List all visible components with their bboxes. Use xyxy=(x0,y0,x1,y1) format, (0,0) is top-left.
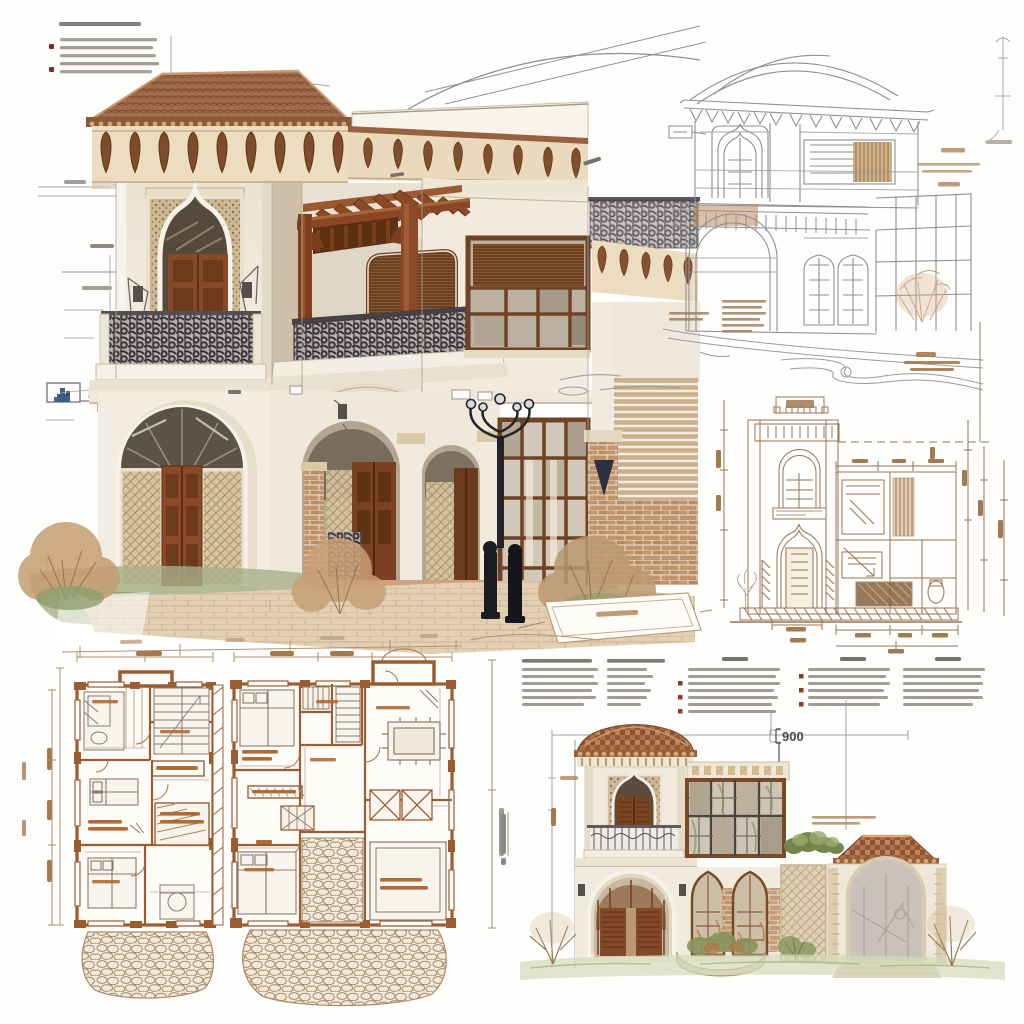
svg-text:900: 900 xyxy=(782,729,804,744)
